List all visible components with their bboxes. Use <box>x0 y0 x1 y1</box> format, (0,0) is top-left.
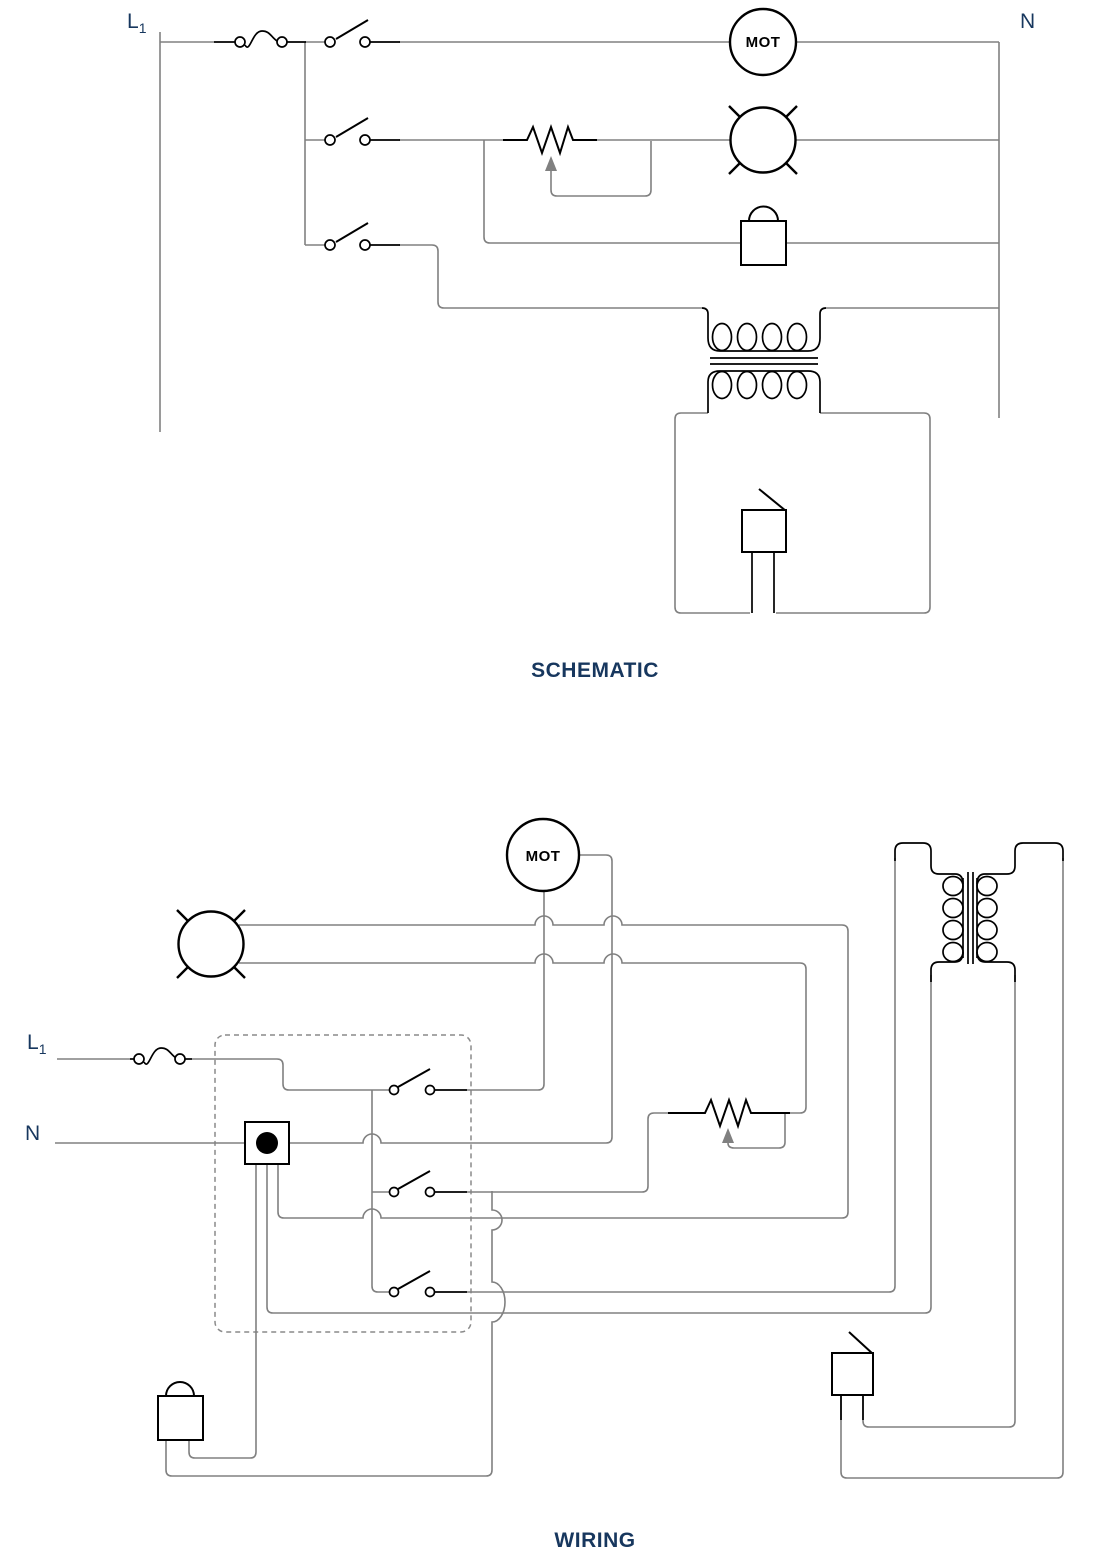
w-transformer-symbol <box>895 843 1063 982</box>
w-heating-element-symbol <box>668 1100 790 1143</box>
w-thermostat-symbol <box>832 1332 873 1420</box>
primary-loop-4 <box>788 324 807 351</box>
schematic-diagram: MOT <box>127 9 1035 682</box>
w-secondary-loop-4 <box>977 943 997 962</box>
w-bell-symbol <box>158 1382 203 1440</box>
wire-bell-tap <box>484 140 741 243</box>
w-switch2-contact-right <box>426 1188 435 1197</box>
w-primary-loop-4 <box>943 943 963 962</box>
w-thermostat-lever <box>849 1332 873 1354</box>
switch-symbol-1 <box>325 20 400 47</box>
switch1-contact-right <box>360 37 370 47</box>
switch2-blade <box>336 118 368 137</box>
w-lamp-symbol <box>177 910 245 978</box>
fuse-symbol <box>214 31 306 47</box>
switch-symbol-3 <box>325 223 400 250</box>
w-resistor-to-lamp-lower <box>239 954 806 1113</box>
w-switch2-blade <box>398 1171 430 1189</box>
w-switch-symbol-1 <box>390 1069 468 1095</box>
schematic-wires <box>160 32 999 613</box>
w-fuse-terminal-right <box>175 1054 185 1064</box>
w-bell-dome <box>166 1382 194 1396</box>
fuse-element <box>245 31 277 47</box>
switch1-contact-left <box>325 37 335 47</box>
w-primary-bottom-lead <box>931 952 963 982</box>
lamp-symbol <box>729 106 797 174</box>
w-switch2-contact-left <box>390 1188 399 1197</box>
junction-box-symbol <box>245 1122 289 1164</box>
w-switch1-contact-left <box>390 1086 399 1095</box>
w-fuse-to-bus <box>192 1059 389 1090</box>
wiper-return-wire <box>551 141 651 196</box>
switch3-blade <box>336 223 368 242</box>
w-resistor-zigzag <box>668 1100 790 1126</box>
wiring-title: WIRING <box>554 1529 635 1552</box>
bell-body <box>741 221 786 265</box>
secondary-loop-1 <box>713 372 732 399</box>
w-bell-to-switch2-tap <box>166 1191 505 1476</box>
switch1-blade <box>336 20 368 39</box>
w-switch3-to-primary-top <box>467 858 895 1292</box>
schematic-l1-label: L1 <box>127 10 147 36</box>
wiring-diagram: MOT <box>25 819 1063 1552</box>
w-line-bus <box>372 1090 389 1292</box>
secondary-loop-2 <box>738 372 757 399</box>
switch2-contact-left <box>325 135 335 145</box>
w-secondary-bottom-to-thermostat <box>863 975 1015 1427</box>
thermostat-body <box>742 510 786 552</box>
switch-symbol-2 <box>325 118 400 145</box>
w-switch1-contact-right <box>426 1086 435 1095</box>
wire-switch3-to-transformer <box>399 245 702 308</box>
wiring-neutral-label: N <box>25 1122 40 1145</box>
w-secondary-loop-3 <box>977 921 997 940</box>
w-secondary-loop-1 <box>977 877 997 896</box>
w-switch-symbol-3 <box>390 1271 468 1297</box>
w-switch2-to-resistor <box>467 1113 672 1192</box>
w-junction-middle-to-primary <box>267 975 931 1313</box>
resistor-zigzag <box>503 127 597 153</box>
w-primary-loop-3 <box>943 921 963 940</box>
w-primary-top-lead <box>895 843 963 884</box>
w-secondary-loop-2 <box>977 899 997 918</box>
w-core-lines <box>968 872 973 964</box>
w-bell-body <box>158 1396 203 1440</box>
switch3-contact-right <box>360 240 370 250</box>
w-fuse-symbol <box>130 1048 192 1064</box>
w-switch1-blade <box>398 1069 430 1087</box>
w-neutral-to-motor <box>289 855 612 1143</box>
circuit-figure: MOT <box>0 0 1096 1568</box>
schematic-neutral-label: N <box>1020 10 1035 33</box>
w-primary-loop-2 <box>943 899 963 918</box>
w-switch1-to-motor <box>467 891 544 1090</box>
thermostat-lever <box>759 489 786 511</box>
lamp-circle <box>731 108 796 173</box>
transformer-symbol <box>702 308 826 413</box>
bell-symbol <box>741 207 786 266</box>
schematic-title: SCHEMATIC <box>531 659 659 682</box>
w-lamp-circle <box>179 912 244 977</box>
fuse-terminal-left <box>235 37 245 47</box>
primary-loop-2 <box>738 324 757 351</box>
thermostat-legs <box>752 552 774 613</box>
secondary-loop-left <box>675 413 750 613</box>
motor-symbol: MOT <box>730 9 796 75</box>
diagram-canvas: MOT <box>0 0 1096 1568</box>
w-switch3-contact-left <box>390 1288 399 1297</box>
secondary-loop-3 <box>763 372 782 399</box>
bell-dome <box>749 207 778 222</box>
wiper-arrow-icon <box>545 156 557 171</box>
fuse-terminal-right <box>277 37 287 47</box>
w-switch3-contact-right <box>426 1288 435 1297</box>
thermostat-symbol <box>742 489 786 613</box>
w-primary-loop-1 <box>943 877 963 896</box>
motor-label: MOT <box>746 34 781 51</box>
w-switch-symbol-2 <box>390 1171 468 1197</box>
wiring-l1-label: L1 <box>27 1031 47 1057</box>
w-fuse-element <box>144 1048 176 1064</box>
secondary-loop-right <box>776 413 930 613</box>
junction-splice-dot <box>256 1132 278 1154</box>
w-motor-label: MOT <box>526 848 561 865</box>
w-thermostat-body <box>832 1353 873 1395</box>
primary-loop-1 <box>713 324 732 351</box>
w-secondary-top-lead <box>977 843 1063 884</box>
w-switch3-blade <box>398 1271 430 1289</box>
w-thermostat-legs <box>841 1395 863 1420</box>
w-secondary-top-to-thermostat <box>841 858 1063 1478</box>
w-fuse-terminal-left <box>134 1054 144 1064</box>
core-lines <box>710 358 818 364</box>
w-motor-symbol: MOT <box>507 819 579 891</box>
secondary-loop-4 <box>788 372 807 399</box>
switch3-contact-left <box>325 240 335 250</box>
switch2-contact-right <box>360 135 370 145</box>
primary-loop-3 <box>763 324 782 351</box>
w-wiper-arrow-icon <box>722 1128 734 1143</box>
heating-element-symbol <box>503 127 597 171</box>
